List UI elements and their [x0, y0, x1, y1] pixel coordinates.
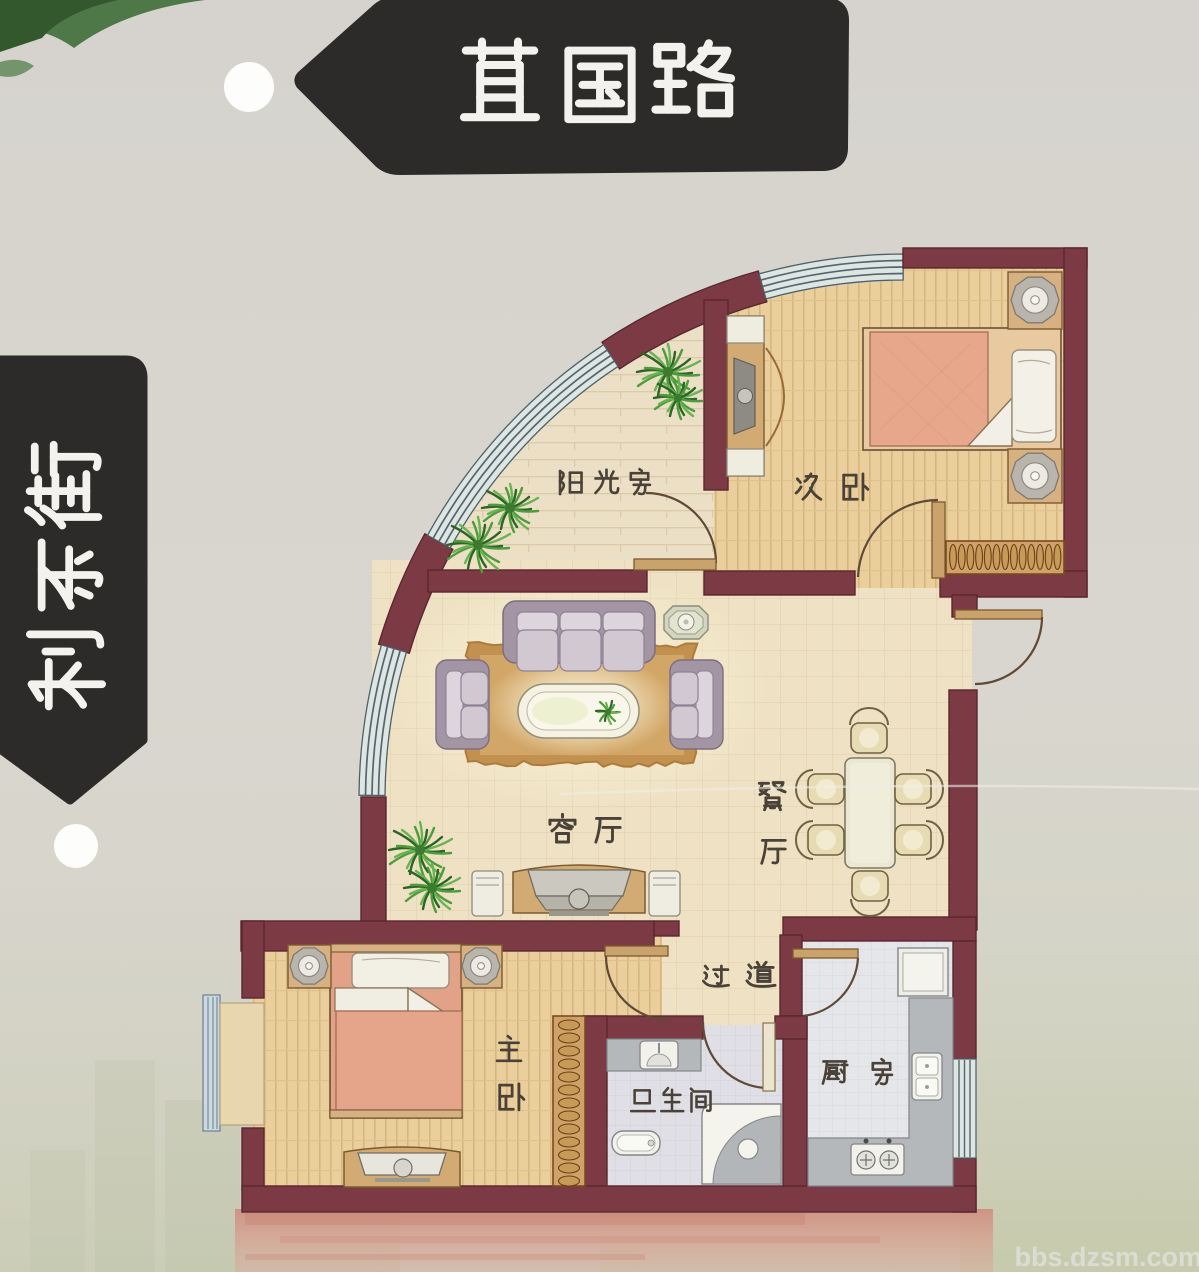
svg-text:bbs.dzsm.com: bbs.dzsm.com: [1014, 1242, 1199, 1272]
